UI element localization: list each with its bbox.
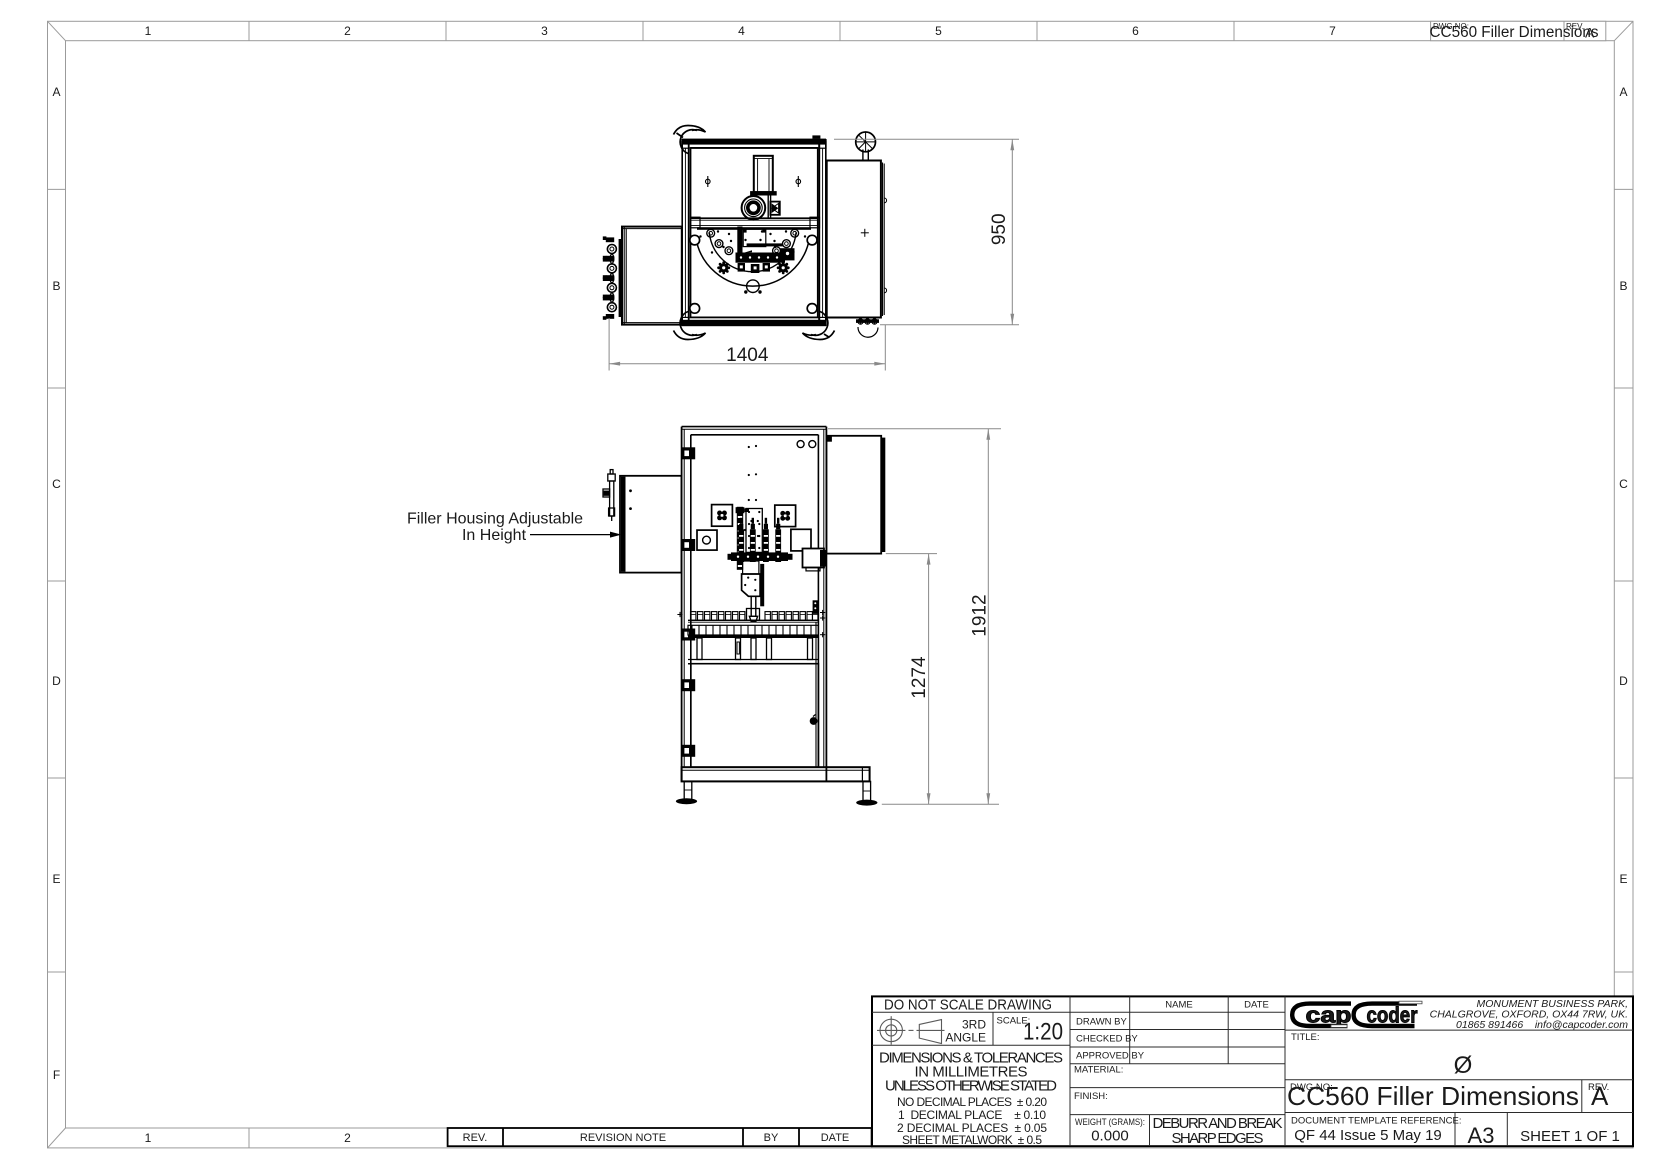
svg-text:1: 1 bbox=[145, 1131, 152, 1145]
svg-text:1:20: 1:20 bbox=[1023, 1019, 1063, 1046]
svg-text:1404: 1404 bbox=[726, 345, 769, 366]
svg-text:A: A bbox=[1585, 25, 1595, 41]
svg-text:DOCUMENT TEMPLATE REFERENCE:: DOCUMENT TEMPLATE REFERENCE: bbox=[1291, 1116, 1462, 1127]
svg-text:6: 6 bbox=[1132, 24, 1139, 38]
svg-text:E: E bbox=[1619, 872, 1627, 886]
svg-text:1274: 1274 bbox=[909, 656, 930, 699]
svg-text:SHEET METALWORK ± 0.5: SHEET METALWORK ± 0.5 bbox=[902, 1133, 1042, 1147]
svg-text:DRAWN BY: DRAWN BY bbox=[1076, 1017, 1128, 1028]
svg-text:F: F bbox=[53, 1068, 60, 1082]
svg-text:A3: A3 bbox=[1468, 1123, 1495, 1148]
svg-text:D: D bbox=[1619, 674, 1628, 688]
svg-text:0.000: 0.000 bbox=[1091, 1128, 1129, 1145]
svg-text:UNLESS OTHERWISE STATED: UNLESS OTHERWISE STATED bbox=[885, 1078, 1057, 1095]
svg-text:QF 44 Issue 5 May 19: QF 44 Issue 5 May 19 bbox=[1294, 1127, 1442, 1144]
svg-text:cap: cap bbox=[1306, 1003, 1352, 1028]
svg-text:7: 7 bbox=[1329, 24, 1336, 38]
svg-text:2: 2 bbox=[344, 24, 351, 38]
svg-text:DO NOT SCALE DRAWING: DO NOT SCALE DRAWING bbox=[884, 997, 1052, 1014]
svg-text:CC560 Filler Dimensions: CC560 Filler Dimensions bbox=[1287, 1081, 1579, 1111]
svg-text:MATERIAL:: MATERIAL: bbox=[1074, 1065, 1123, 1076]
svg-text:TITLE:: TITLE: bbox=[1291, 1032, 1320, 1043]
svg-text:NAME: NAME bbox=[1165, 1000, 1192, 1011]
svg-text:5: 5 bbox=[935, 24, 942, 38]
svg-text:coder: coder bbox=[1367, 1003, 1418, 1028]
svg-text:Ø: Ø bbox=[1454, 1052, 1473, 1079]
svg-text:A: A bbox=[1591, 1081, 1609, 1111]
svg-text:CHECKED BY: CHECKED BY bbox=[1076, 1034, 1138, 1045]
svg-text:REV.: REV. bbox=[1566, 22, 1584, 31]
svg-text:B: B bbox=[1619, 279, 1627, 293]
svg-text:NO DECIMAL PLACES ± 0.20: NO DECIMAL PLACES ± 0.20 bbox=[897, 1095, 1047, 1109]
svg-text:3: 3 bbox=[541, 24, 548, 38]
svg-text:1: 1 bbox=[145, 24, 152, 38]
svg-text:B: B bbox=[52, 279, 60, 293]
svg-text:4: 4 bbox=[738, 24, 745, 38]
svg-text:C: C bbox=[1619, 477, 1628, 491]
svg-text:E: E bbox=[52, 872, 60, 886]
svg-text:REVISION NOTE: REVISION NOTE bbox=[580, 1132, 666, 1144]
svg-text:In Height: In Height bbox=[462, 527, 527, 544]
svg-text:APPROVED BY: APPROVED BY bbox=[1076, 1051, 1145, 1062]
svg-text:01865 891466 info@capcoder.: 01865 891466 info@capcoder.com bbox=[1456, 1019, 1628, 1031]
svg-text:1912: 1912 bbox=[970, 594, 991, 636]
svg-text:REV.: REV. bbox=[463, 1132, 488, 1144]
svg-text:950: 950 bbox=[989, 213, 1010, 245]
svg-text:DATE: DATE bbox=[1244, 1000, 1269, 1011]
svg-text:C: C bbox=[52, 477, 61, 491]
svg-text:D: D bbox=[52, 674, 61, 688]
svg-text:BY: BY bbox=[764, 1132, 779, 1144]
svg-text:SHARP EDGES: SHARP EDGES bbox=[1172, 1130, 1264, 1147]
svg-text:DATE: DATE bbox=[821, 1132, 850, 1144]
svg-text:WEIGHT (GRAMS):: WEIGHT (GRAMS): bbox=[1075, 1117, 1145, 1128]
svg-text:A: A bbox=[1619, 85, 1627, 99]
svg-text:FINISH:: FINISH: bbox=[1074, 1091, 1108, 1102]
svg-text:1 DECIMAL PLACE ± 0.10: 1 DECIMAL PLACE ± 0.10 bbox=[898, 1108, 1046, 1122]
svg-text:SHEET 1 OF 1: SHEET 1 OF 1 bbox=[1520, 1128, 1620, 1145]
svg-text:2: 2 bbox=[344, 1131, 351, 1145]
svg-text:ANGLE: ANGLE bbox=[945, 1031, 986, 1045]
svg-text:A: A bbox=[52, 85, 60, 99]
svg-text:Filler Housing Adjustable: Filler Housing Adjustable bbox=[407, 511, 583, 528]
svg-text:3RD: 3RD bbox=[962, 1018, 986, 1032]
